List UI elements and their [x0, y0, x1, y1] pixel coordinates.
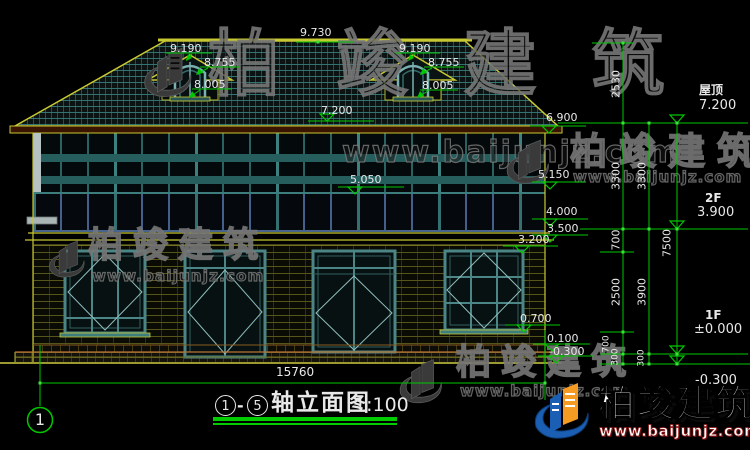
elevation-label-dormer-right-top: 9.190 [399, 43, 431, 54]
dimension-ticks [39, 41, 679, 385]
elevation-label-dormer-right-eave: 8.755 [428, 57, 460, 68]
dim-3300-mid: 3300 [637, 162, 648, 190]
elevation-label-dormer-left-eave: 8.755 [204, 57, 236, 68]
title-axis-from: 1 [215, 395, 236, 416]
dim-300-inner: 300 [612, 348, 621, 365]
elevation-label-0700: 0.700 [520, 313, 552, 324]
title-axis-to: 5 [247, 395, 268, 416]
level-2f-value: 3.900 [697, 206, 734, 219]
dim-300-mid: 300 [638, 349, 647, 366]
level-roof-value: 7.200 [699, 99, 736, 112]
elevation-label-5150: 5.150 [538, 169, 570, 180]
dim-2500: 2500 [611, 278, 622, 306]
elevation-label-4000: 4.000 [546, 206, 578, 217]
dim-2530: 2530 [611, 70, 622, 98]
elevation-label-3500: 3.500 [547, 223, 579, 234]
elevation-label-dormer-left-top: 9.190 [170, 43, 202, 54]
footer-logo [530, 376, 594, 442]
elevation-label-roof-surface: 7.200 [321, 105, 353, 116]
level-1f-value: ±0.000 [694, 323, 742, 336]
elevation-label-dormer-right-base: 8.005 [422, 80, 454, 91]
dim-total-width: 15760 [276, 366, 314, 378]
axis-bubble-number: 1 [35, 412, 45, 428]
dim-3300-inner: 3300 [611, 162, 622, 190]
level-2f-name: 2F [705, 192, 722, 204]
level-roof-name: 屋顶 [699, 84, 723, 96]
footer-brand: 柏竣建筑 [598, 385, 750, 422]
dim-3900: 3900 [637, 278, 648, 306]
title-underline-thin [213, 423, 397, 425]
elevation-label-eave: 6.900 [546, 112, 578, 123]
elevation-label-5050: 5.050 [350, 174, 382, 185]
elevation-label-dormer-left-base: 8.005 [194, 79, 226, 90]
leader-lines [166, 42, 594, 356]
title-axis-separator: - [237, 398, 244, 414]
cad-elevation-drawing: 柏竣建筑 www.baijunjz.com 柏竣建筑 www.baijunjz.… [0, 0, 750, 450]
footer-site: www.baijunjz.com [599, 424, 750, 439]
elevation-label-3200: 3.200 [518, 234, 550, 245]
drawing-scale: 1:100 [354, 396, 409, 415]
dim-7500: 7500 [662, 229, 673, 257]
elevation-label-0100: 0.100 [547, 333, 579, 344]
level-triangles [320, 114, 684, 364]
title-underline-thick [213, 417, 397, 421]
level-1f-name: 1F [705, 309, 722, 321]
dim-700-upper: 700 [611, 230, 622, 251]
elevation-label-ridge: 9.730 [300, 27, 332, 38]
elevation-label-neg0300: -0.300 [549, 346, 584, 357]
